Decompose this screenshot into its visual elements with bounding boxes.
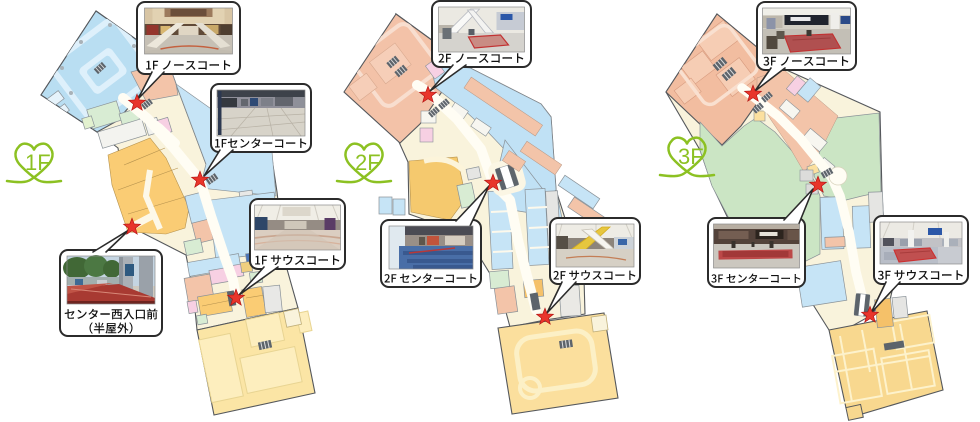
svg-text:1F: 1F: [25, 150, 51, 175]
svg-text:3F: 3F: [678, 144, 704, 169]
svg-text:2F: 2F: [355, 150, 381, 175]
